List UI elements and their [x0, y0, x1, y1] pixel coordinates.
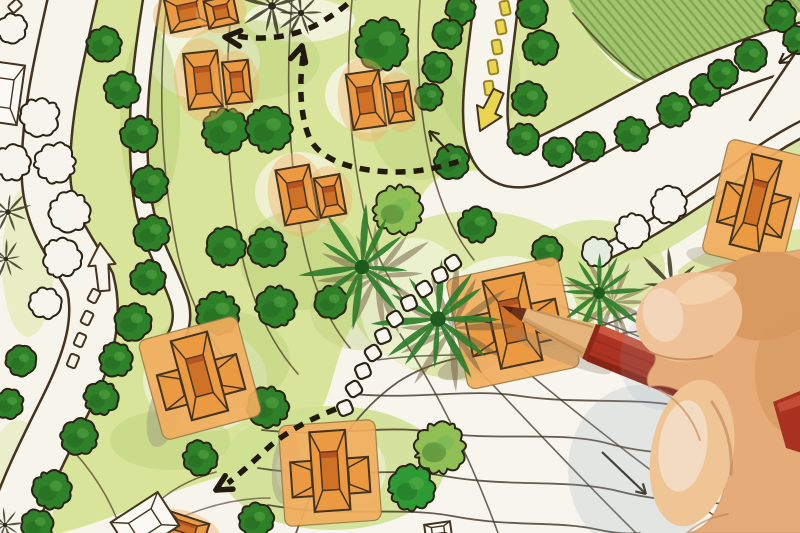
road-dash-marking: [487, 59, 498, 74]
tree-outline-symbol: [20, 98, 60, 137]
site-plan-canvas: [0, 0, 800, 533]
tree-outline-symbol: [582, 237, 612, 267]
road-dash-marking: [499, 0, 511, 16]
tree-outline-symbol: [29, 287, 62, 319]
road-dash-marking: [491, 39, 502, 54]
tree-outline-symbol: [0, 144, 31, 180]
road-dash-marking: [495, 19, 507, 34]
site-plan-photo: [0, 0, 800, 533]
house-symbol: [278, 419, 382, 526]
tree-outline-symbol: [0, 13, 27, 43]
